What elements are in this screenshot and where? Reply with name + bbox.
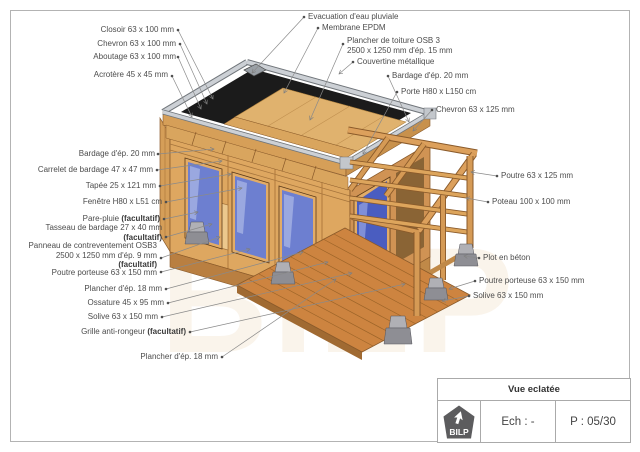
svg-text:BILP: BILP [449,427,469,437]
label-bardage-droit: Bardage d'ép. 20 mm [392,71,468,81]
label-poteau: Poteau 100 x 100 mm [492,197,570,207]
label-acrotere: Acrotère 45 x 45 mm [94,70,168,80]
label-fenetre: Fenêtre H80 x L51 cm [83,197,162,207]
bilp-logo-icon: BILP [443,405,475,439]
label-poutre-porteuse-gauche: Poutre porteuse 63 x 150 mm [52,268,157,278]
label-plancher-gauche: Plancher d'ép. 18 mm [84,284,162,294]
label-tapee: Tapée 25 x 121 mm [86,181,156,191]
page-number-field: P : 05/30 [556,401,630,442]
label-plot: Plot en béton [483,253,530,263]
label-couvertine: Couvertine métallique [357,57,434,67]
view-name: Vue eclatée [438,379,630,401]
label-closoir: Closoir 63 x 100 mm [101,25,174,35]
label-poutre-porteuse-droite: Poutre porteuse 63 x 150 mm [479,276,584,286]
bilp-logo: BILP [438,401,481,442]
label-solive-gauche: Solive 63 x 150 mm [88,312,158,322]
label-evacuation: Evacuation d'eau pluviale [308,12,398,22]
label-plancher-toiture: Plancher de toiture OSB 32500 x 1250 mm … [347,36,453,55]
label-porte: Porte H80 x L150 cm [401,87,476,97]
label-membrane: Membrane EPDM [322,23,386,33]
drawing-sheet: BILP [0,0,640,452]
label-tasseau: Tasseau de bardage 27 x 40 mm(facultatif… [45,223,162,242]
label-plancher-bas: Plancher d'ép. 18 mm [140,352,218,362]
label-carrelet: Carrelet de bardage 47 x 47 mm [38,165,153,175]
label-aboutage: Aboutage 63 x 100 mm [93,52,176,62]
label-chevron-droit: Chevron 63 x 125 mm [436,105,515,115]
label-bardage-gauche: Bardage d'ép. 20 mm [79,149,155,159]
scale-field: Ech : - [481,401,556,442]
label-ossature: Ossature 45 x 95 mm [88,298,164,308]
title-block: Vue eclatée BILP Ech : - P : 05/30 [437,378,631,443]
label-solive-droite: Solive 63 x 150 mm [473,291,543,301]
label-chevron-gauche: Chevron 63 x 100 mm [97,39,176,49]
label-grille: Grille anti-rongeur (facultatif) [81,327,186,337]
label-poutre-droite: Poutre 63 x 125 mm [501,171,573,181]
label-panneau: Panneau de contreventement OSB32500 x 12… [28,241,157,270]
